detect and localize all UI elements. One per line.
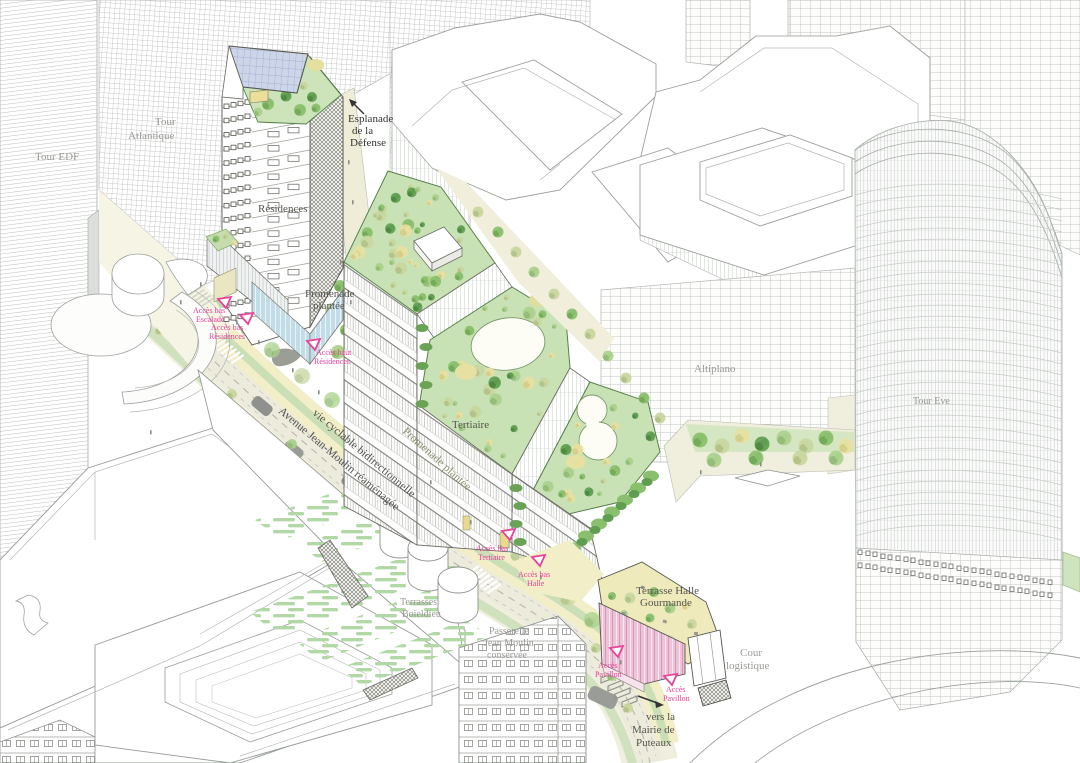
- svg-text:Résidences: Résidences: [258, 203, 307, 215]
- svg-text:Mairie de: Mairie de: [632, 724, 675, 736]
- svg-text:Résidences: Résidences: [209, 332, 245, 341]
- svg-text:Tertiaire: Tertiaire: [478, 553, 505, 562]
- svg-text:Puteaux: Puteaux: [636, 737, 672, 749]
- svg-text:Terrasses: Terrasses: [400, 597, 437, 608]
- svg-text:Passerelle: Passerelle: [489, 626, 530, 637]
- svg-text:Gourmande: Gourmande: [640, 597, 692, 609]
- svg-text:Accès: Accès: [666, 685, 686, 694]
- svg-text:plantée: plantée: [313, 300, 345, 312]
- svg-text:Pavillon: Pavillon: [663, 694, 690, 703]
- svg-text:Boieldieu: Boieldieu: [402, 609, 441, 620]
- svg-text:Altiplano: Altiplano: [694, 363, 736, 375]
- svg-text:Halle: Halle: [527, 579, 545, 588]
- svg-text:Jean Moulin: Jean Moulin: [484, 638, 534, 649]
- svg-text:vers la: vers la: [646, 711, 675, 723]
- svg-text:Tertiaire: Tertiaire: [452, 419, 489, 431]
- svg-text:Atlantique: Atlantique: [128, 130, 175, 142]
- svg-text:Terrasse Halle: Terrasse Halle: [636, 585, 699, 597]
- svg-text:Accès haut: Accès haut: [316, 348, 352, 357]
- svg-text:Tour EDF: Tour EDF: [35, 151, 79, 163]
- svg-text:Accès: Accès: [598, 661, 618, 670]
- svg-text:conservée: conservée: [487, 650, 528, 661]
- svg-text:Pavillon: Pavillon: [595, 670, 622, 679]
- svg-text:Esplanade: Esplanade: [348, 113, 393, 125]
- svg-text:de la: de la: [352, 125, 373, 137]
- svg-text:Promenade: Promenade: [305, 288, 355, 300]
- svg-text:Cour: Cour: [740, 647, 762, 659]
- svg-text:Accès bas: Accès bas: [211, 323, 243, 332]
- svg-text:Accès bas: Accès bas: [193, 306, 225, 315]
- svg-text:Tour: Tour: [155, 116, 176, 128]
- svg-text:Tour Eve: Tour Eve: [913, 396, 950, 407]
- svg-text:Accès bas: Accès bas: [518, 570, 550, 579]
- svg-text:Résidences: Résidences: [314, 357, 350, 366]
- svg-text:Défense: Défense: [350, 137, 386, 149]
- svg-text:Accès bas: Accès bas: [476, 544, 508, 553]
- svg-text:logistique: logistique: [726, 660, 770, 672]
